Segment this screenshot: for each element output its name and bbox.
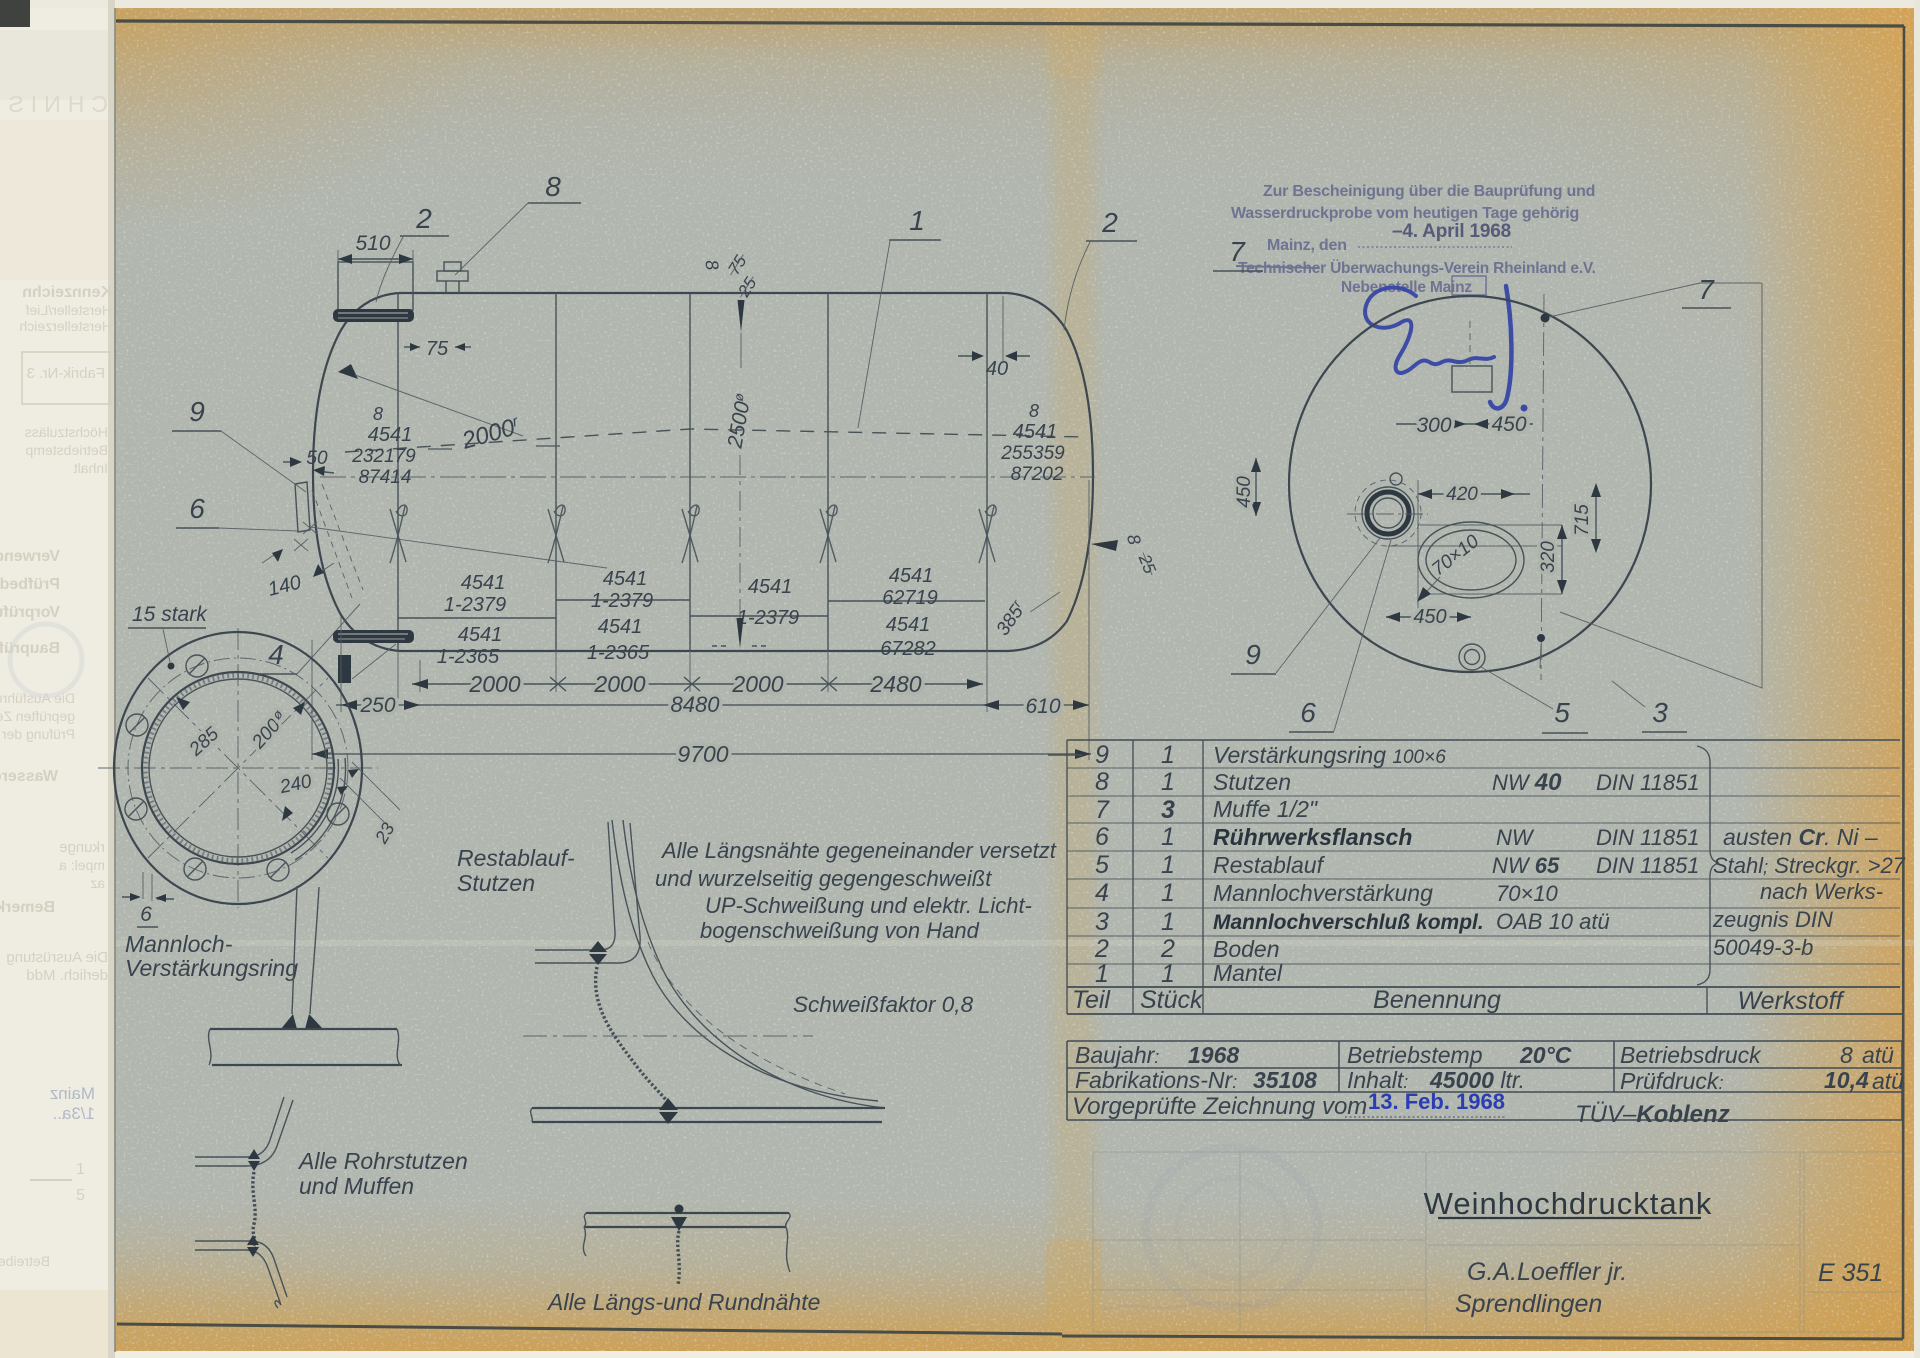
svg-text:Mannloch-: Mannloch- [125, 931, 233, 957]
svg-text:4541: 4541 [889, 565, 934, 587]
svg-text:232179: 232179 [351, 446, 416, 467]
svg-text:450: 450 [1413, 606, 1446, 628]
svg-text:3: 3 [1161, 796, 1175, 824]
svg-text:OAB 10 atü: OAB 10 atü [1496, 909, 1610, 934]
svg-text:9: 9 [189, 396, 205, 427]
svg-text:1-2379: 1-2379 [737, 607, 799, 629]
svg-text:Technischer Überwachungs-Verei: Technischer Überwachungs-Verein Rheinlan… [1238, 260, 1596, 277]
svg-text:4541: 4541 [603, 568, 648, 590]
svg-text:450: 450 [1234, 476, 1255, 508]
svg-text:4541: 4541 [1013, 421, 1058, 443]
svg-text:Alle Längsnähte gegeneinander: Alle Längsnähte gegeneinander versetzt [660, 838, 1057, 863]
svg-text:1-2379: 1-2379 [591, 590, 653, 612]
svg-text:610: 610 [1025, 695, 1060, 718]
svg-text:geprüften Zeich: geprüften Zeich [0, 708, 75, 724]
svg-text:NW 65: NW 65 [1492, 853, 1560, 878]
svg-text:–4. April 1968: –4. April 1968 [1392, 221, 1511, 242]
svg-text:atü: atü [1862, 1042, 1894, 1068]
svg-text:TÜV–Koblenz: TÜV–Koblenz [1575, 1101, 1730, 1128]
svg-text:2000: 2000 [593, 671, 645, 697]
svg-text:Die Ausrüstung: Die Ausrüstung [6, 949, 108, 966]
svg-text:Mannlochverstärkung: Mannlochverstärkung [1213, 880, 1433, 906]
svg-text:E 351: E 351 [1818, 1259, 1883, 1287]
svg-text:G.A.Loeffler jr.: G.A.Loeffler jr. [1467, 1258, 1627, 1286]
svg-text:Restablauf: Restablauf [1213, 852, 1326, 878]
svg-text:4: 4 [268, 639, 284, 670]
svg-text:Fabrikations-Nr:: Fabrikations-Nr: [1075, 1067, 1237, 1093]
svg-text:1-2365: 1-2365 [437, 646, 500, 668]
svg-text:Rührwerksflansch: Rührwerksflansch [1213, 824, 1412, 850]
svg-text:Betriebsdruck: Betriebsdruck [1620, 1042, 1762, 1068]
svg-text:8: 8 [373, 404, 383, 424]
svg-text:zeugnis DIN: zeugnis DIN [1712, 907, 1833, 932]
svg-text:Kennzeichn: Kennzeichn [22, 284, 112, 301]
svg-text:1968: 1968 [1188, 1042, 1239, 1068]
svg-text:4541: 4541 [368, 424, 413, 446]
svg-text:6: 6 [1095, 823, 1109, 851]
svg-text:3: 3 [1652, 697, 1668, 728]
svg-text:Werkstoff: Werkstoff [1737, 987, 1845, 1015]
svg-text:Alle Rohrstutzen: Alle Rohrstutzen [297, 1148, 468, 1174]
svg-text:8: 8 [545, 171, 561, 202]
svg-text:1: 1 [1161, 960, 1175, 988]
svg-text:nach Werks-: nach Werks- [1760, 879, 1883, 904]
svg-text:5: 5 [1095, 851, 1109, 879]
svg-text:Prüfung der Be: Prüfung der Be [0, 726, 75, 742]
svg-text:Mannlochverschluß kompl.: Mannlochverschluß kompl. [1213, 911, 1484, 934]
svg-text:6: 6 [1300, 697, 1316, 728]
svg-text:87414: 87414 [359, 467, 412, 488]
svg-text:Weinhochdrucktank: Weinhochdrucktank [1424, 1186, 1713, 1221]
svg-text:7: 7 [1095, 796, 1110, 824]
svg-text:1: 1 [909, 205, 925, 236]
svg-text:450: 450 [1491, 413, 1526, 436]
svg-text:4: 4 [1095, 879, 1109, 907]
svg-text:Stutzen: Stutzen [457, 870, 535, 896]
svg-text:13. Feb. 1968: 13. Feb. 1968 [1368, 1089, 1505, 1114]
svg-text:1-2379: 1-2379 [444, 594, 506, 616]
svg-text:510: 510 [355, 232, 390, 255]
svg-text:8480: 8480 [671, 692, 721, 717]
svg-text:Stutzen: Stutzen [1213, 769, 1291, 795]
svg-text:und Muffen: und Muffen [299, 1173, 414, 1199]
svg-text:1/3a..: 1/3a.. [52, 1104, 95, 1123]
svg-text:1: 1 [76, 1161, 85, 1178]
svg-text:62719: 62719 [882, 587, 938, 609]
svg-text:40: 40 [986, 358, 1008, 380]
svg-text:4541: 4541 [458, 624, 503, 646]
svg-text:Betriebstemp: Betriebstemp [1347, 1042, 1483, 1068]
svg-text:1: 1 [1161, 741, 1175, 769]
svg-text:6: 6 [189, 493, 205, 524]
svg-text:6: 6 [140, 903, 152, 926]
svg-text:4541: 4541 [748, 576, 793, 598]
svg-text:20°C: 20°C [1519, 1042, 1572, 1068]
svg-text:Betriebstemp: Betriebstemp [25, 442, 108, 458]
svg-text:8: 8 [1840, 1042, 1853, 1068]
svg-text:255359: 255359 [1000, 443, 1065, 464]
svg-text:1: 1 [1161, 823, 1175, 851]
svg-text:9700: 9700 [677, 741, 728, 767]
svg-text:300: 300 [1416, 414, 1451, 437]
svg-text:DIN 11851: DIN 11851 [1596, 853, 1700, 878]
svg-text:Stahl; Streckgr. >27: Stahl; Streckgr. >27 [1713, 853, 1906, 878]
svg-text:5: 5 [1554, 697, 1570, 728]
svg-text:atü: atü [1872, 1068, 1904, 1094]
svg-text:Inhalt: Inhalt [74, 460, 108, 476]
svg-text:NW 40: NW 40 [1492, 769, 1562, 796]
svg-text:1-2365: 1-2365 [587, 642, 650, 664]
svg-text:Mantel: Mantel [1213, 960, 1283, 986]
svg-text:mpel: a: mpel: a [59, 857, 105, 873]
svg-text:Zur Bescheinigung über die Bau: Zur Bescheinigung über die Bauprüfung un… [1263, 183, 1595, 200]
svg-text:1: 1 [1161, 851, 1175, 879]
svg-text:2: 2 [1101, 207, 1118, 238]
svg-text:Herstellerzeich: Herstellerzeich [19, 318, 112, 334]
svg-text:Alle Längs-und Rundnähte: Alle Längs-und Rundnähte [546, 1289, 820, 1315]
svg-text:70×10: 70×10 [1496, 881, 1559, 906]
svg-text:derlich. Mdd: derlich. Mdd [26, 967, 108, 984]
svg-text:Boden: Boden [1213, 936, 1280, 962]
svg-text:Baujahr:: Baujahr: [1075, 1042, 1159, 1068]
svg-text:75: 75 [426, 338, 449, 360]
svg-text:1: 1 [1161, 768, 1175, 796]
svg-text:NW: NW [1496, 825, 1535, 850]
svg-text:Bemerkung: Bemerkung [0, 899, 55, 916]
svg-text:Benennung: Benennung [1373, 986, 1501, 1014]
svg-text:UP-Schweißung und elektr. Lich: UP-Schweißung und elektr. Licht- [705, 893, 1032, 918]
svg-text:1: 1 [1095, 960, 1109, 988]
svg-text:Wasserdruckprobe vom heutigen: Wasserdruckprobe vom heutigen Tage gehör… [1231, 205, 1579, 222]
svg-text:8: 8 [1029, 401, 1039, 421]
svg-text:8: 8 [1095, 768, 1109, 796]
svg-text:Muffe 1/2": Muffe 1/2" [1213, 796, 1319, 822]
svg-text:4541: 4541 [461, 572, 506, 594]
svg-text:rkunge: rkunge [59, 839, 105, 856]
svg-text:Stück: Stück [1140, 986, 1204, 1014]
svg-text:2: 2 [415, 203, 432, 234]
svg-text:Vorgeprüfte Zeichnung vom: Vorgeprüfte Zeichnung vom [1072, 1093, 1367, 1120]
svg-text:7: 7 [1698, 274, 1715, 305]
svg-text:9: 9 [1095, 741, 1109, 769]
svg-text:Mainz: Mainz [50, 1084, 95, 1103]
svg-text:Fabrik-Nr. 3: Fabrik-Nr. 3 [27, 365, 105, 382]
svg-text:4541: 4541 [886, 614, 931, 636]
svg-text:Restablauf-: Restablauf- [457, 845, 575, 871]
svg-text:austen Cr. Ni –: austen Cr. Ni – [1723, 824, 1878, 850]
svg-text:Höchstzuläss: Höchstzuläss [25, 424, 108, 440]
svg-text:5: 5 [76, 1187, 85, 1204]
svg-text:Sprendlingen: Sprendlingen [1455, 1290, 1602, 1318]
svg-text:2: 2 [1094, 935, 1109, 963]
svg-text:35108: 35108 [1253, 1067, 1317, 1093]
svg-text:50049-3-b: 50049-3-b [1713, 935, 1813, 960]
svg-text:Betreiber:: Betreiber: [0, 1253, 50, 1269]
svg-text:250: 250 [359, 694, 395, 717]
svg-text:7: 7 [1229, 236, 1246, 267]
svg-text:DIN 11851: DIN 11851 [1596, 825, 1700, 850]
svg-text:87202: 87202 [1011, 464, 1064, 485]
svg-text:715: 715 [1572, 504, 1593, 536]
svg-text:10,4: 10,4 [1824, 1067, 1869, 1093]
svg-text:az: az [90, 875, 105, 891]
svg-text:Verwendung: Verwendung [0, 548, 60, 565]
svg-text:Wasserdruck: Wasserdruck [0, 768, 58, 785]
svg-text:2: 2 [1160, 935, 1175, 963]
svg-text:9: 9 [1245, 639, 1261, 670]
svg-text:50: 50 [306, 448, 328, 469]
svg-text:320: 320 [1538, 541, 1559, 573]
svg-text:Prüfbedinge: Prüfbedinge [0, 576, 60, 593]
svg-text:15 stark: 15 stark [132, 603, 208, 626]
svg-text:420: 420 [1446, 484, 1478, 505]
svg-text:3: 3 [1095, 908, 1109, 936]
svg-text:2000: 2000 [731, 671, 783, 697]
svg-text:Mainz, den: Mainz, den [1267, 237, 1347, 254]
svg-text:2480: 2480 [869, 671, 921, 697]
svg-text:4541: 4541 [598, 616, 643, 638]
svg-text:Prüfdruck:: Prüfdruck: [1620, 1068, 1723, 1094]
svg-text:1: 1 [1161, 879, 1175, 907]
svg-text:Teil: Teil [1072, 986, 1111, 1014]
svg-text:67282: 67282 [880, 638, 936, 660]
svg-text:CHNISC: CHNISC [0, 91, 108, 117]
svg-text:DIN 11851: DIN 11851 [1596, 770, 1700, 795]
svg-text:Verstärkungsring: Verstärkungsring [125, 955, 298, 981]
svg-text:und wurzelseitig gegengeschwei: und wurzelseitig gegengeschweißt [655, 866, 992, 891]
svg-text:2000: 2000 [468, 671, 520, 697]
svg-text:Vorprüfung: Vorprüfung [0, 604, 60, 621]
svg-text:Hersteller/Lief: Hersteller/Lief [26, 302, 112, 318]
svg-text:1: 1 [1161, 908, 1175, 936]
svg-text:bogenschweißung von Hand: bogenschweißung von Hand [700, 918, 980, 943]
svg-text:Schweißfaktor 0,8: Schweißfaktor 0,8 [793, 992, 974, 1017]
